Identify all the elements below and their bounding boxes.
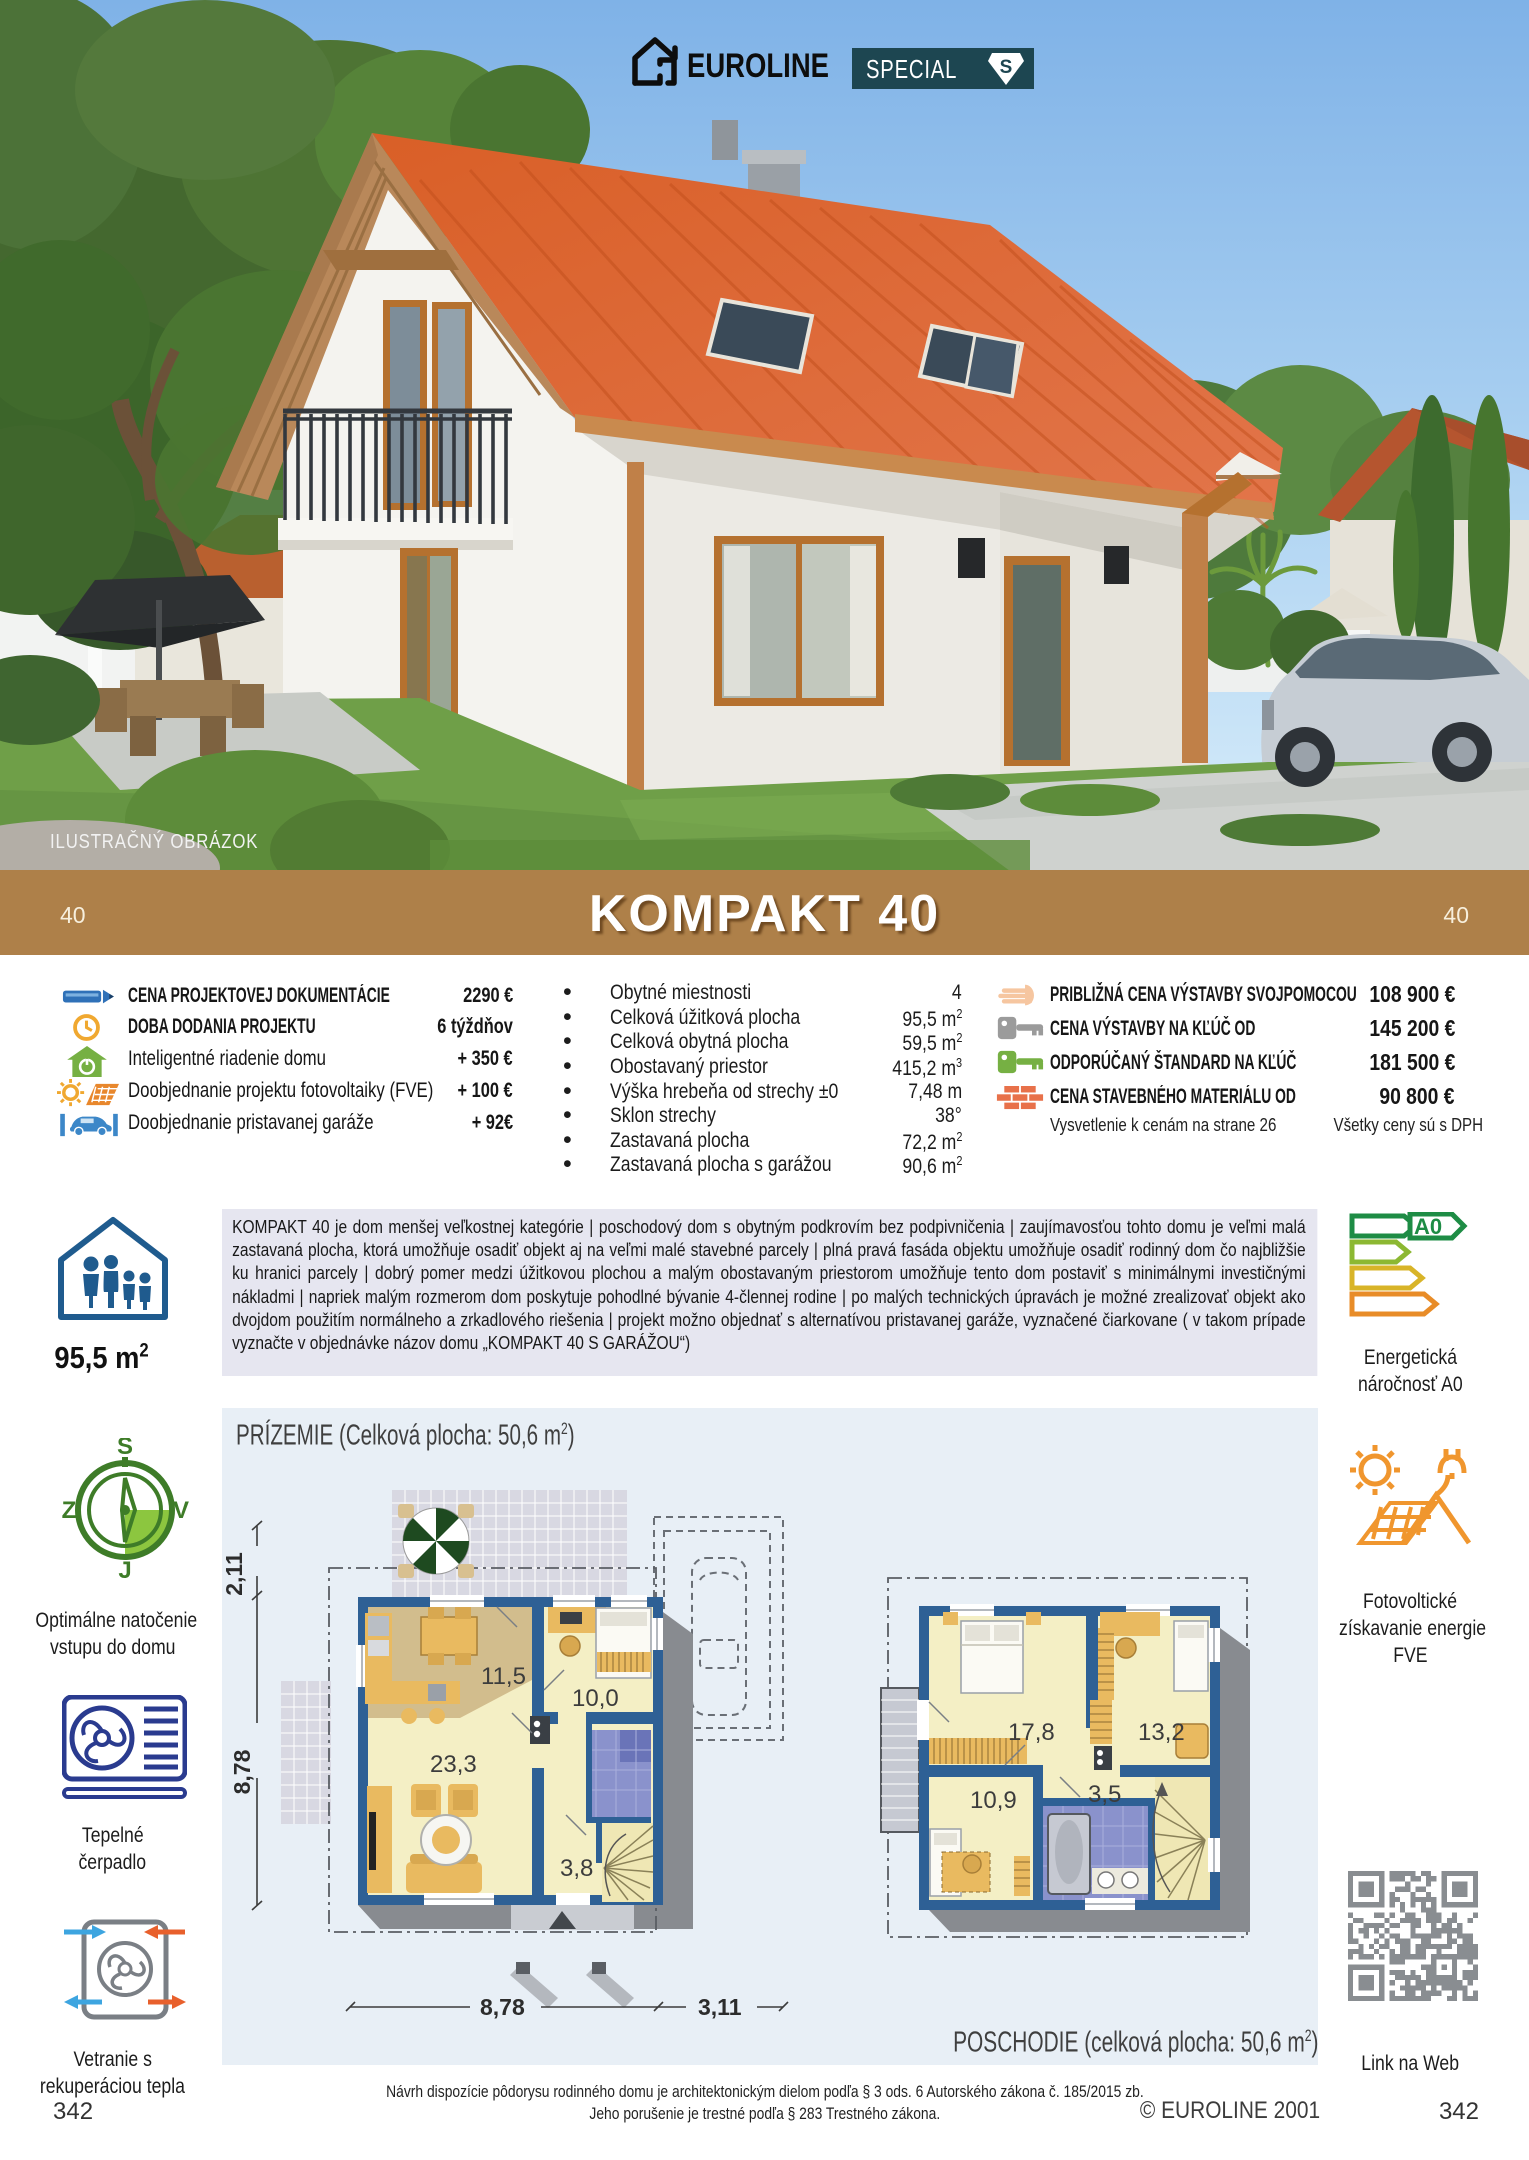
svg-text:V: V bbox=[173, 1497, 189, 1524]
svg-text:13,2: 13,2 bbox=[1138, 1719, 1185, 1746]
svg-text:2,11: 2,11 bbox=[226, 1552, 247, 1596]
svg-text:3,8: 3,8 bbox=[560, 1855, 593, 1882]
svg-text:23,3: 23,3 bbox=[430, 1751, 477, 1778]
svg-text:3,5: 3,5 bbox=[1088, 1781, 1121, 1808]
svg-text:S: S bbox=[117, 1438, 133, 1460]
svg-text:10,9: 10,9 bbox=[970, 1787, 1017, 1814]
svg-text:A0: A0 bbox=[1414, 1214, 1442, 1239]
svg-text:EUROLINE: EUROLINE bbox=[687, 47, 829, 85]
svg-text:8,78: 8,78 bbox=[480, 1994, 525, 2020]
svg-text:10,0: 10,0 bbox=[572, 1685, 619, 1712]
svg-text:Z: Z bbox=[62, 1497, 77, 1524]
svg-text:S: S bbox=[1000, 57, 1013, 78]
svg-text:8,78: 8,78 bbox=[229, 1749, 255, 1794]
svg-text:17,8: 17,8 bbox=[1008, 1719, 1055, 1746]
svg-text:J: J bbox=[118, 1557, 131, 1578]
svg-text:3,11: 3,11 bbox=[698, 1994, 742, 2020]
svg-text:11,5: 11,5 bbox=[481, 1663, 526, 1690]
